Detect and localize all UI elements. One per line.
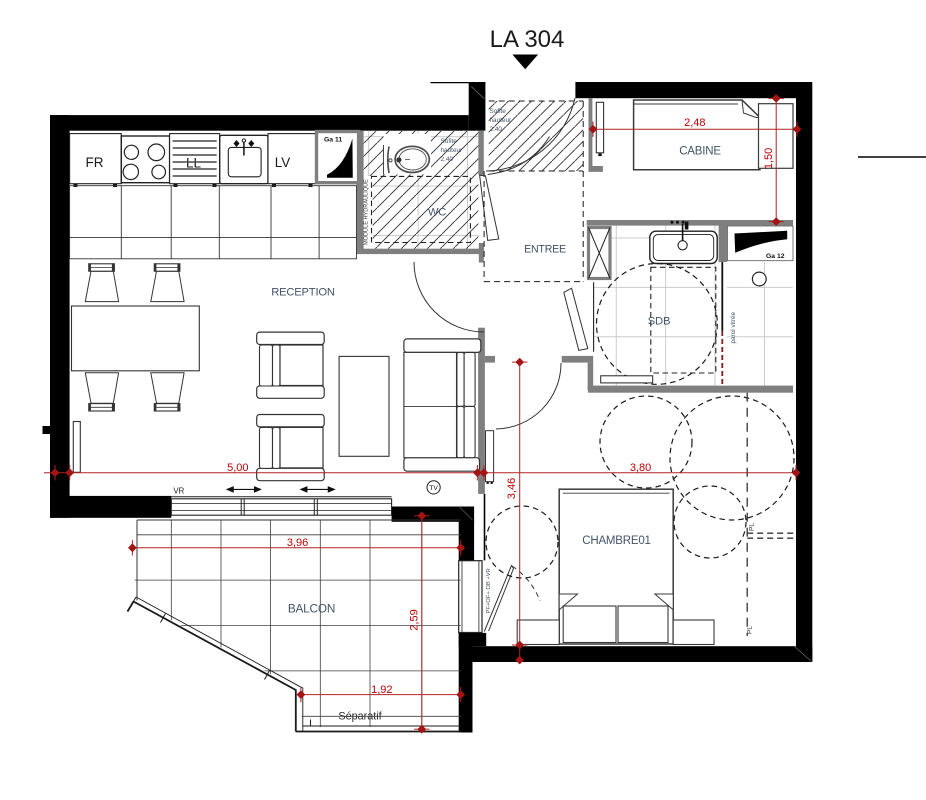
svg-text:hauteur: hauteur [441,147,464,154]
svg-text:3,96: 3,96 [287,537,308,549]
svg-text:1,50: 1,50 [763,148,775,169]
svg-text:Ga 11: Ga 11 [324,137,342,144]
svg-text:hauteur: hauteur [490,117,513,124]
svg-text:PL: PL [747,626,754,634]
svg-text:2.40: 2.40 [441,156,454,163]
svg-text:Sofite: Sofite [490,108,507,115]
svg-text:TV: TV [429,485,438,492]
svg-text:MODULE HYDRAULIQUE: MODULE HYDRAULIQUE [364,179,370,245]
svg-text:LL: LL [186,156,202,171]
svg-text:CHAMBRE01: CHAMBRE01 [582,535,651,547]
svg-text:5,00: 5,00 [227,462,248,474]
svg-text:PL: PL [749,523,756,531]
svg-text:ENTREE: ENTREE [524,244,566,256]
svg-text:3,80: 3,80 [630,462,651,474]
svg-text:FR: FR [86,155,104,170]
svg-text:LV: LV [275,155,291,170]
svg-text:VR: VR [173,487,184,496]
svg-text:2.40: 2.40 [490,126,503,133]
svg-text:1,92: 1,92 [371,684,392,696]
svg-text:RECEPTION: RECEPTION [271,287,335,299]
svg-text:Sofite: Sofite [441,138,458,145]
svg-text:LA 304: LA 304 [490,26,565,53]
svg-text:2,48: 2,48 [684,117,705,129]
svg-text:Séparatif: Séparatif [338,711,382,723]
svg-text:PF+OF+ OB +VR: PF+OF+ OB +VR [486,568,492,613]
svg-text:WC: WC [428,207,446,219]
svg-text:2,59: 2,59 [408,609,420,630]
svg-text:BALCON: BALCON [288,602,335,616]
svg-text:paroi vitrée: paroi vitrée [730,311,737,343]
svg-text:3,46: 3,46 [506,478,518,499]
svg-text:CABINE: CABINE [679,146,721,158]
svg-text:Ga 12: Ga 12 [766,253,785,260]
